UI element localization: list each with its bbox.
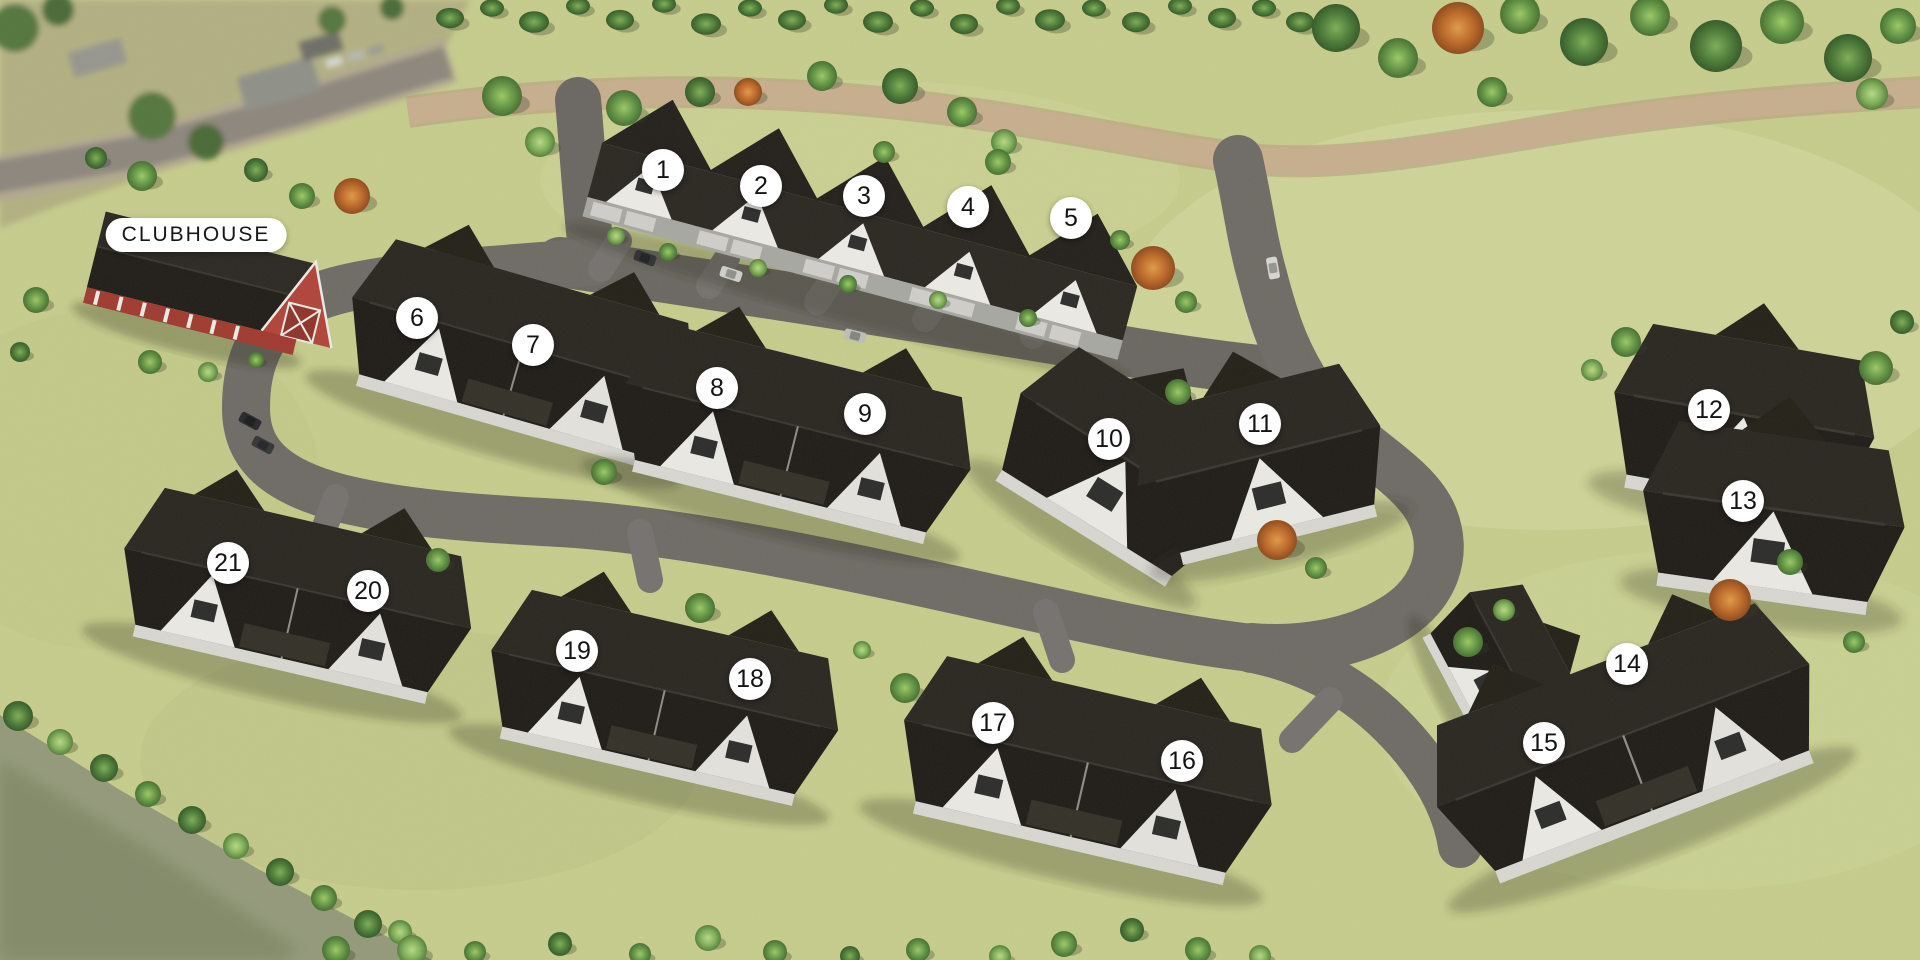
clubhouse-label: CLUBHOUSE — [106, 218, 287, 252]
unit-marker-13[interactable]: 13 — [1722, 480, 1764, 522]
site-plan-map: CLUBHOUSE 123456789101112131415161718192… — [0, 0, 1920, 960]
clubhouse-label-text: CLUBHOUSE — [122, 223, 271, 246]
unit-marker-21[interactable]: 21 — [207, 542, 249, 584]
unit-marker-19[interactable]: 19 — [556, 630, 598, 672]
unit-marker-6[interactable]: 6 — [396, 297, 438, 339]
unit-marker-1[interactable]: 1 — [642, 149, 684, 191]
unit-marker-14[interactable]: 14 — [1606, 643, 1648, 685]
unit-marker-8[interactable]: 8 — [696, 367, 738, 409]
unit-marker-5[interactable]: 5 — [1050, 197, 1092, 239]
unit-marker-17[interactable]: 17 — [972, 702, 1014, 744]
labels-overlay: CLUBHOUSE 123456789101112131415161718192… — [0, 0, 1920, 960]
unit-marker-11[interactable]: 11 — [1239, 403, 1281, 445]
unit-marker-3[interactable]: 3 — [843, 175, 885, 217]
unit-marker-12[interactable]: 12 — [1688, 389, 1730, 431]
unit-marker-9[interactable]: 9 — [844, 393, 886, 435]
unit-marker-7[interactable]: 7 — [512, 324, 554, 366]
unit-marker-16[interactable]: 16 — [1161, 740, 1203, 782]
unit-marker-20[interactable]: 20 — [347, 570, 389, 612]
unit-marker-2[interactable]: 2 — [740, 165, 782, 207]
unit-marker-15[interactable]: 15 — [1523, 722, 1565, 764]
unit-marker-10[interactable]: 10 — [1088, 418, 1130, 460]
unit-marker-18[interactable]: 18 — [729, 658, 771, 700]
unit-marker-4[interactable]: 4 — [947, 186, 989, 228]
